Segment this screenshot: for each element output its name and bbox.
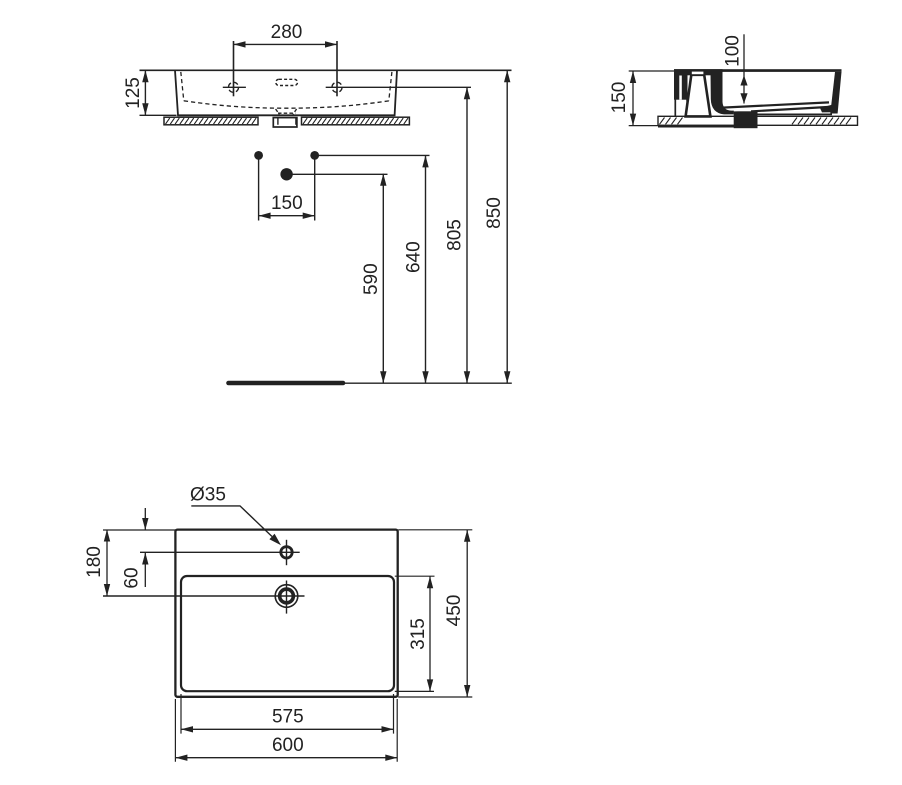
svg-text:850: 850 — [484, 197, 505, 229]
svg-text:280: 280 — [271, 22, 303, 43]
svg-text:640: 640 — [403, 241, 424, 273]
svg-text:590: 590 — [361, 263, 382, 295]
svg-text:125: 125 — [123, 77, 144, 109]
svg-text:600: 600 — [272, 735, 304, 756]
svg-text:450: 450 — [444, 595, 465, 627]
svg-text:Ø35: Ø35 — [190, 485, 226, 506]
svg-text:60: 60 — [121, 567, 142, 588]
svg-text:575: 575 — [272, 706, 304, 727]
svg-text:315: 315 — [408, 618, 429, 650]
svg-text:150: 150 — [271, 193, 303, 214]
svg-text:180: 180 — [84, 546, 105, 578]
svg-text:150: 150 — [609, 82, 630, 114]
svg-text:805: 805 — [445, 219, 466, 251]
svg-text:100: 100 — [722, 35, 743, 67]
